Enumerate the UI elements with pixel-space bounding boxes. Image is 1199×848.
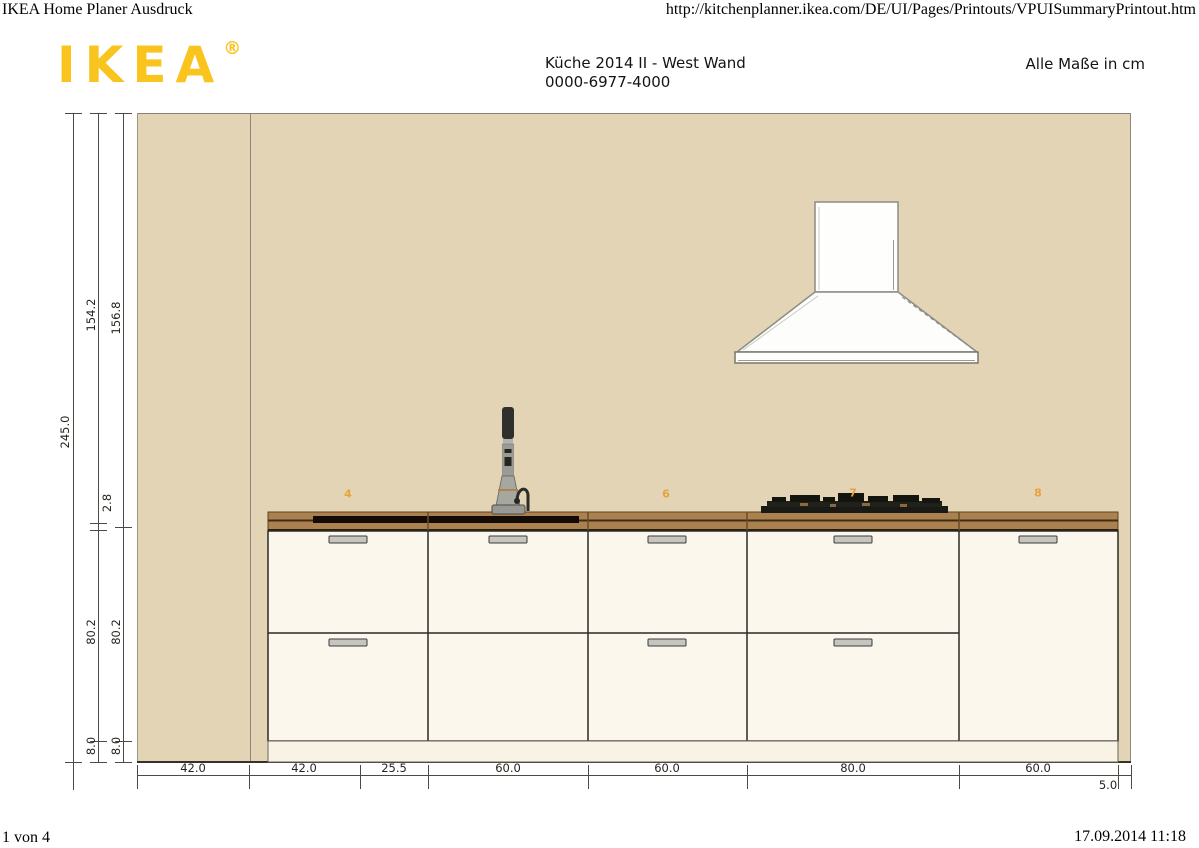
print-timestamp: 17.09.2014 11:18	[1074, 828, 1186, 846]
item-number-6: 6	[662, 488, 670, 501]
dim-width-4: 60.0	[495, 761, 521, 775]
sink-rim	[313, 516, 579, 523]
dim-plinth-height-b: 8.0	[84, 737, 98, 755]
kitchen-elevation-drawing	[0, 0, 1199, 848]
dim-width-2: 42.0	[291, 761, 317, 775]
dim-cabinet-height-c: 80.2	[109, 619, 123, 645]
plinth	[268, 741, 1118, 762]
dim-width-7: 60.0	[1025, 761, 1051, 775]
dim-total-height: 245.0	[58, 416, 72, 449]
dim-wall-upper-c: 156.8	[109, 302, 123, 335]
dim-width-3: 25.5	[381, 761, 407, 775]
base-cabinets	[268, 531, 1118, 762]
item-number-8: 8	[1034, 487, 1042, 500]
printout-page: IKEA Home Planer Ausdruck http://kitchen…	[0, 0, 1199, 848]
item-number-7: 7	[849, 487, 857, 500]
page-indicator: 1 von 4	[2, 829, 50, 847]
dim-worktop-thickness: 2.8	[100, 494, 114, 512]
dim-plinth-height-c: 8.0	[109, 737, 123, 755]
dim-width-6: 80.0	[840, 761, 866, 775]
dim-width-5: 60.0	[654, 761, 680, 775]
dim-width-1: 42.0	[180, 761, 206, 775]
dim-width-8: 5.0	[1099, 778, 1117, 792]
item-number-4: 4	[344, 488, 352, 501]
dim-cabinet-height-b: 80.2	[84, 619, 98, 645]
worktop	[268, 512, 1118, 531]
dim-wall-upper-b: 154.2	[84, 299, 98, 332]
